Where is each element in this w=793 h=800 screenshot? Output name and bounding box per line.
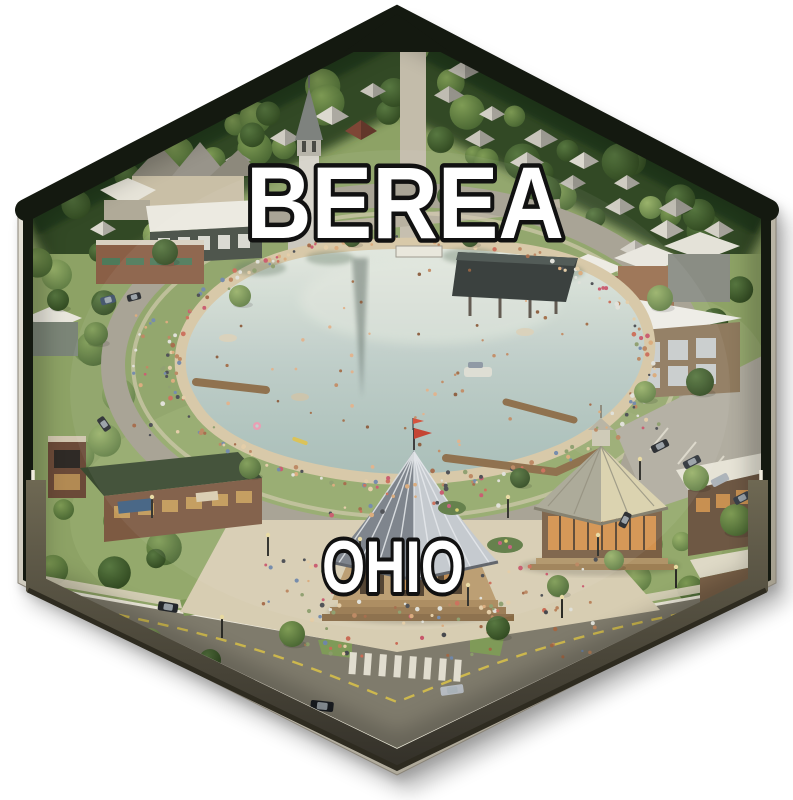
state-name-text: OHIO [322,527,464,608]
hexagon-badge-graphic: BEREA OHIO [0,0,793,800]
berea-ohio-hexagon-badge: BEREA OHIO [0,0,793,800]
aerial-town-illustration [0,0,793,800]
city-name-text: BEREA [246,146,564,260]
